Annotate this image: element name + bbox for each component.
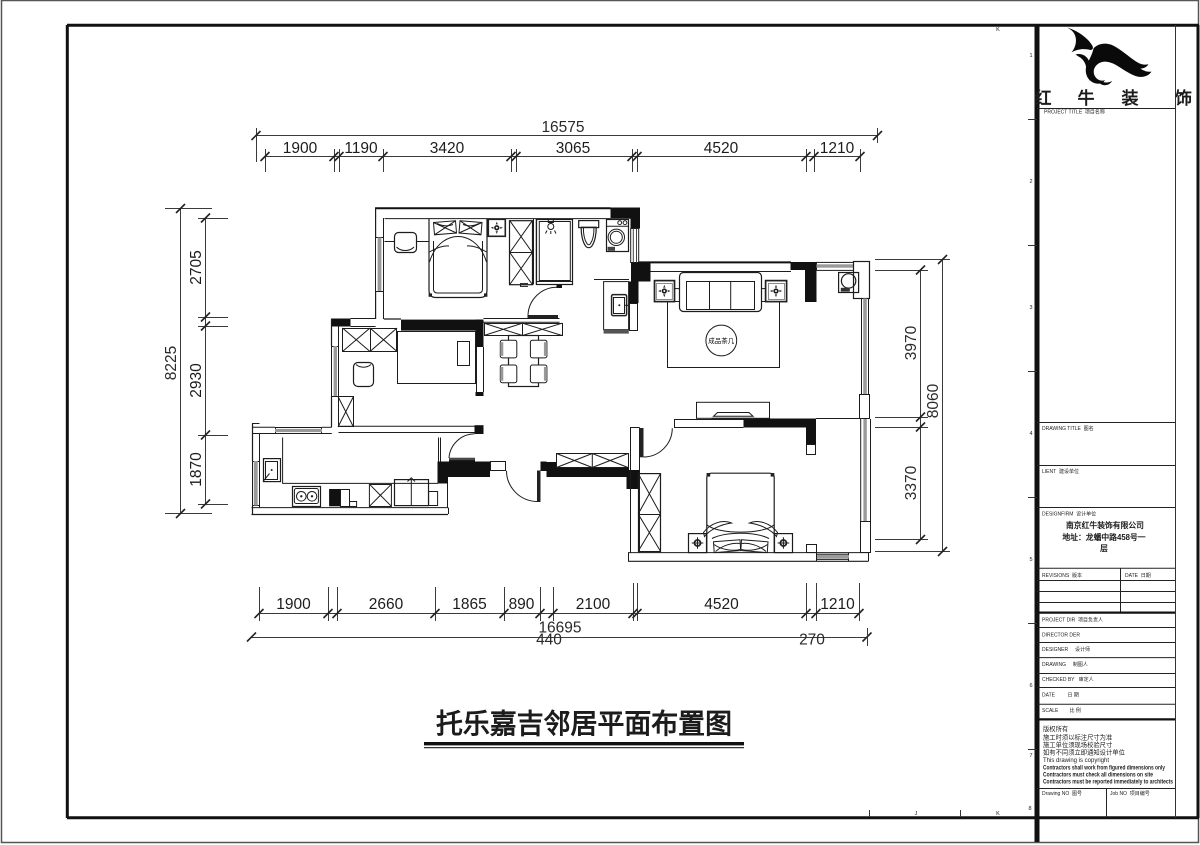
svg-text:4: 4 — [1029, 431, 1032, 437]
svg-text:如有不同须立即通知设计单位: 如有不同须立即通知设计单位 — [1043, 748, 1126, 757]
svg-text:施工时须以标注尺寸为准: 施工时须以标注尺寸为准 — [1043, 733, 1112, 742]
svg-text:地址：龙蟠中路458号一: 地址：龙蟠中路458号一 — [1062, 532, 1145, 542]
svg-text:层: 层 — [1100, 544, 1108, 553]
svg-text:CHECKED BY 审定人: CHECKED BY 审定人 — [1042, 676, 1094, 683]
svg-text:饰: 饰 — [1175, 88, 1192, 108]
svg-text:K: K — [996, 811, 1000, 817]
svg-text:1900: 1900 — [283, 140, 318, 157]
svg-text:8: 8 — [1028, 806, 1031, 812]
svg-text:1210: 1210 — [820, 596, 855, 613]
svg-text:6: 6 — [1029, 683, 1032, 689]
svg-text:托乐嘉吉邻居平面布置图: 托乐嘉吉邻居平面布置图 — [436, 708, 732, 739]
svg-text:DIRECTOR DER: DIRECTOR DER — [1042, 633, 1080, 639]
svg-text:2: 2 — [1029, 179, 1032, 185]
svg-text:440: 440 — [536, 632, 562, 649]
svg-text:7: 7 — [1029, 753, 1032, 759]
svg-text:施工单位须现场校验尺寸: 施工单位须现场校验尺寸 — [1043, 740, 1112, 749]
svg-text:红: 红 — [1035, 88, 1052, 108]
svg-text:DESIGNER 设计师: DESIGNER 设计师 — [1042, 646, 1090, 653]
svg-text:Contractors must check all dim: Contractors must check all dimensions on… — [1043, 772, 1153, 779]
svg-text:2705: 2705 — [188, 250, 205, 284]
svg-text:4520: 4520 — [704, 140, 739, 157]
svg-text:Contractors must be reported i: Contractors must be reported immediately… — [1043, 779, 1173, 786]
svg-text:DATE 日 期: DATE 日 期 — [1042, 693, 1079, 699]
svg-text:Contractors shall work from fi: Contractors shall work from figured dime… — [1043, 765, 1165, 772]
svg-text:SCALE 比 例: SCALE 比 例 — [1042, 707, 1081, 714]
svg-text:K: K — [996, 27, 1000, 33]
svg-text:8060: 8060 — [925, 383, 942, 418]
svg-text:4520: 4520 — [704, 596, 739, 613]
svg-text:南京红牛装饰有限公司: 南京红牛装饰有限公司 — [1066, 520, 1144, 530]
svg-text:PROJECT DIR 项目负责人: PROJECT DIR 项目负责人 — [1042, 617, 1103, 624]
svg-text:16575: 16575 — [541, 119, 584, 136]
svg-text:890: 890 — [509, 596, 535, 613]
svg-text:3970: 3970 — [903, 325, 920, 360]
svg-text:5: 5 — [1029, 557, 1032, 563]
svg-text:1865: 1865 — [452, 596, 486, 613]
svg-text:This drawing is copyright: This drawing is copyright — [1043, 758, 1109, 764]
svg-text:DESIGNFIRM 设计单位: DESIGNFIRM 设计单位 — [1042, 511, 1096, 518]
svg-text:Drawing NO 图号: Drawing NO 图号 — [1042, 791, 1082, 797]
svg-text:成品茶几: 成品茶几 — [708, 336, 735, 345]
svg-text:3370: 3370 — [903, 465, 920, 500]
svg-text:PROJECT TITLE 项目名称: PROJECT TITLE 项目名称 — [1044, 109, 1105, 116]
svg-text:270: 270 — [799, 632, 825, 649]
svg-text:LIENT 建设单位: LIENT 建设单位 — [1042, 468, 1079, 475]
svg-text:1900: 1900 — [276, 596, 311, 613]
svg-text:1: 1 — [1029, 53, 1032, 59]
svg-text:1190: 1190 — [344, 140, 378, 157]
svg-text:3420: 3420 — [430, 140, 465, 157]
svg-text:REVISIONS 版本: REVISIONS 版本 — [1042, 572, 1082, 579]
svg-text:DRAWING TITLE 图名: DRAWING TITLE 图名 — [1042, 425, 1094, 432]
svg-text:3: 3 — [1029, 305, 1032, 311]
svg-text:2100: 2100 — [576, 596, 611, 613]
svg-text:版权所有: 版权所有 — [1043, 724, 1068, 733]
svg-text:DRAWING 制图人: DRAWING 制图人 — [1042, 661, 1088, 668]
svg-text:1870: 1870 — [188, 452, 205, 487]
svg-text:J: J — [915, 811, 918, 817]
svg-text:8225: 8225 — [163, 346, 180, 380]
svg-text:Job NO 项目编号: Job NO 项目编号 — [1110, 790, 1150, 797]
svg-text:DATE 日期: DATE 日期 — [1125, 573, 1151, 579]
svg-text:2660: 2660 — [369, 596, 404, 613]
svg-text:1210: 1210 — [820, 140, 855, 157]
svg-text:装: 装 — [1121, 88, 1139, 108]
svg-text:牛: 牛 — [1078, 88, 1095, 108]
svg-text:3065: 3065 — [556, 140, 590, 157]
svg-text:2930: 2930 — [188, 363, 205, 398]
